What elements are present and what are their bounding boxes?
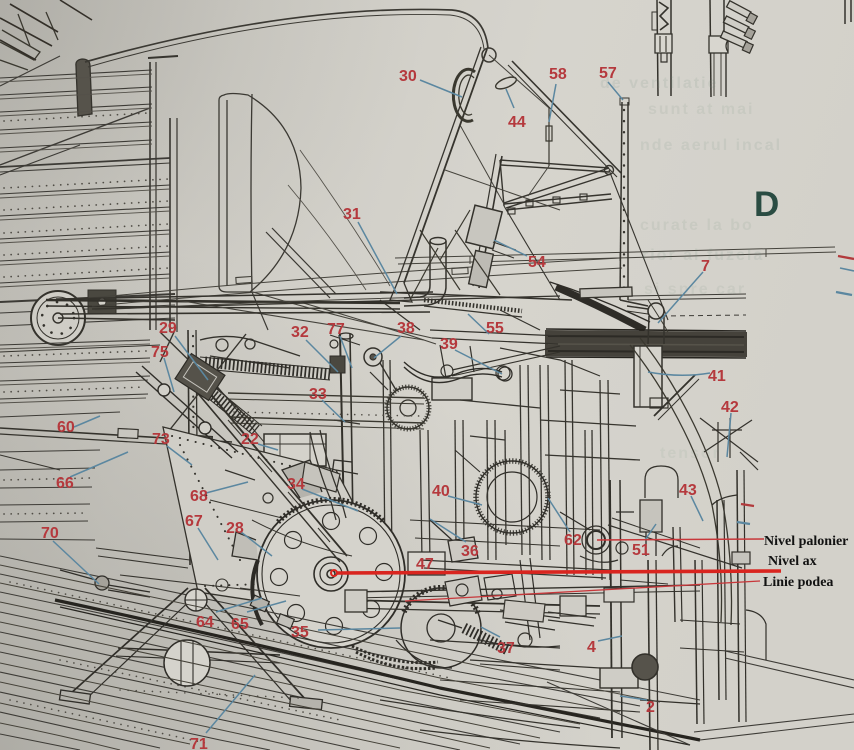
svg-text:36: 36 (461, 543, 479, 560)
svg-text:37: 37 (497, 640, 515, 657)
svg-text:35: 35 (291, 624, 309, 641)
svg-text:7: 7 (701, 258, 710, 275)
svg-text:51: 51 (632, 542, 650, 559)
svg-text:31: 31 (343, 206, 361, 223)
svg-text:Linie podea: Linie podea (763, 575, 833, 590)
svg-text:54: 54 (528, 254, 546, 271)
svg-text:58: 58 (549, 66, 567, 83)
svg-text:4: 4 (587, 639, 596, 656)
svg-text:55: 55 (486, 320, 504, 337)
svg-text:40: 40 (432, 483, 450, 500)
svg-text:nde aerul incal: nde aerul incal (640, 137, 782, 154)
svg-text:42: 42 (721, 399, 739, 416)
svg-text:44: 44 (508, 114, 526, 131)
svg-text:67: 67 (185, 513, 203, 530)
svg-text:71: 71 (190, 736, 208, 750)
svg-text:73: 73 (152, 431, 170, 448)
svg-text:tensor: tensor (660, 445, 721, 462)
svg-text:34: 34 (287, 476, 305, 493)
svg-text:28: 28 (226, 520, 244, 537)
svg-text:30: 30 (399, 68, 417, 85)
svg-text:66: 66 (56, 475, 74, 492)
svg-text:39: 39 (440, 336, 458, 353)
svg-text:Nivel palonier: Nivel palonier (764, 534, 848, 549)
svg-text:si spre car: si spre car (644, 281, 746, 298)
svg-text:de ventilatie: de ventilatie (600, 75, 718, 92)
svg-text:65: 65 (231, 616, 249, 633)
svg-text:60: 60 (57, 419, 75, 436)
svg-text:22: 22 (241, 431, 259, 448)
svg-text:D: D (754, 185, 779, 224)
svg-text:32: 32 (291, 324, 309, 341)
svg-text:75: 75 (151, 344, 169, 361)
svg-text:curate la bo: curate la bo (640, 217, 754, 234)
svg-text:43: 43 (679, 482, 697, 499)
svg-text:2: 2 (646, 699, 655, 716)
svg-text:sunt at mai: sunt at mai (648, 101, 754, 118)
svg-text:33: 33 (309, 386, 327, 403)
svg-text:62: 62 (564, 532, 582, 549)
svg-text:38: 38 (397, 320, 415, 337)
svg-text:77: 77 (327, 321, 345, 338)
svg-text:64: 64 (196, 614, 214, 631)
svg-text:68: 68 (190, 488, 208, 505)
svg-text:41: 41 (708, 368, 726, 385)
svg-text:70: 70 (41, 525, 59, 542)
svg-text:Nivel ax: Nivel ax (768, 554, 817, 569)
svg-text:29: 29 (159, 320, 177, 337)
svg-text:57: 57 (599, 65, 617, 82)
svg-text:47: 47 (416, 556, 434, 573)
